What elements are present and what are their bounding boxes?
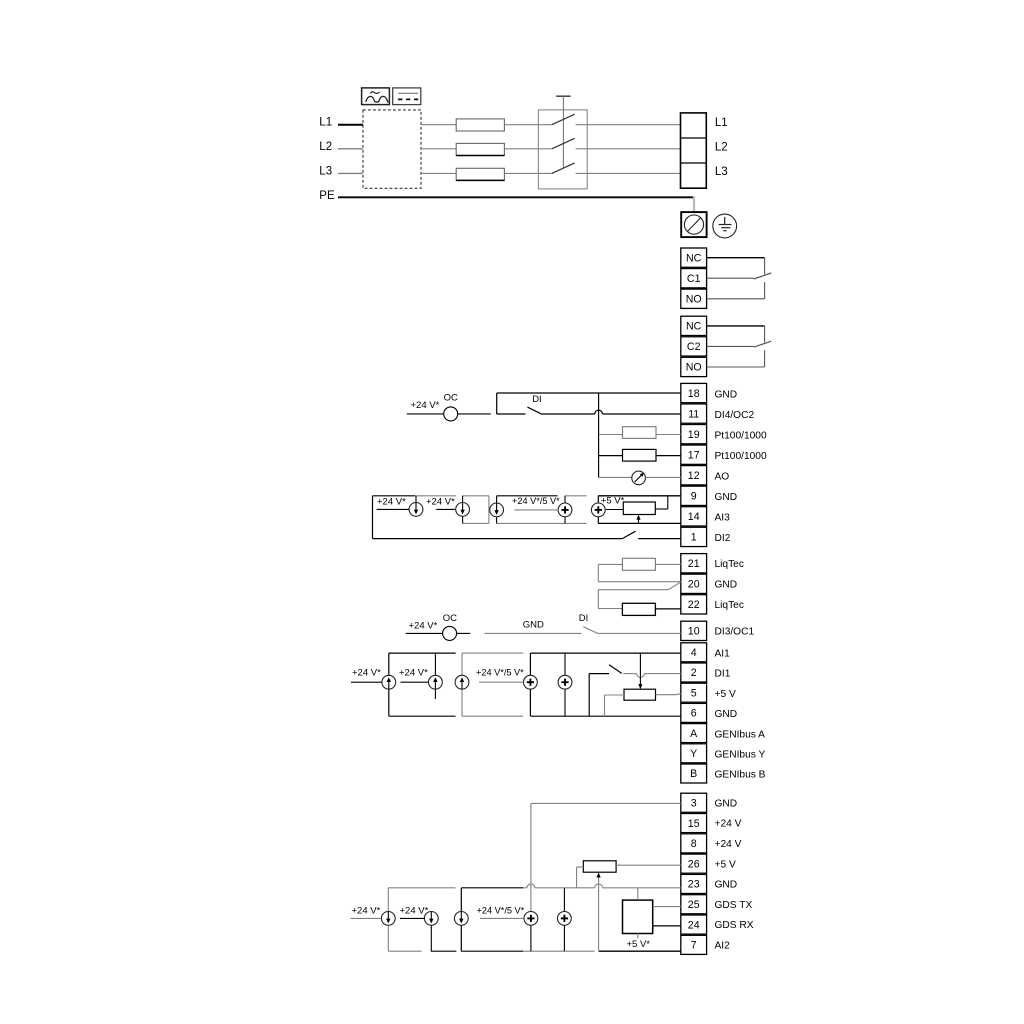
svg-text:B: B <box>690 768 697 780</box>
svg-text:1: 1 <box>691 532 697 544</box>
svg-text:DI2: DI2 <box>715 533 731 544</box>
svg-text:23: 23 <box>688 879 700 891</box>
svg-text:14: 14 <box>688 511 700 523</box>
svg-text:+24 V*: +24 V* <box>352 668 381 679</box>
svg-text:GND: GND <box>715 579 738 590</box>
svg-text:NO: NO <box>686 362 702 374</box>
svg-text:+24 V*: +24 V* <box>377 497 406 508</box>
svg-text:21: 21 <box>688 558 700 570</box>
svg-text:+24 V*: +24 V* <box>426 497 455 508</box>
svg-text:AI2: AI2 <box>715 941 731 952</box>
svg-text:+24 V*: +24 V* <box>411 400 440 411</box>
svg-text:+5 V: +5 V <box>715 859 736 870</box>
svg-text:OC: OC <box>444 393 458 404</box>
svg-text:A: A <box>690 728 698 740</box>
svg-text:22: 22 <box>688 599 700 611</box>
svg-text:C1: C1 <box>687 273 701 285</box>
svg-text:15: 15 <box>688 818 700 830</box>
svg-text:NC: NC <box>686 252 702 264</box>
svg-text:10: 10 <box>688 626 700 638</box>
svg-text:C2: C2 <box>687 341 701 353</box>
svg-text:25: 25 <box>688 899 700 911</box>
svg-text:4: 4 <box>691 647 697 659</box>
svg-text:+24 V*: +24 V* <box>400 906 429 917</box>
svg-text:GENIbus B: GENIbus B <box>715 770 766 781</box>
svg-text:GND: GND <box>715 709 738 720</box>
svg-text:Y: Y <box>690 748 697 760</box>
svg-text:DI: DI <box>532 394 542 405</box>
svg-text:NO: NO <box>686 293 702 305</box>
svg-text:11: 11 <box>688 408 699 420</box>
svg-text:L1: L1 <box>715 117 728 129</box>
svg-text:2: 2 <box>691 667 697 679</box>
svg-text:Pt100/1000: Pt100/1000 <box>715 430 767 441</box>
svg-text:L3: L3 <box>319 166 332 178</box>
svg-text:12: 12 <box>688 470 700 482</box>
svg-text:+24 V*/5 V*: +24 V*/5 V* <box>512 496 560 506</box>
svg-text:26: 26 <box>688 858 700 870</box>
svg-text:LiqTec: LiqTec <box>715 600 744 611</box>
svg-text:9: 9 <box>691 491 697 503</box>
svg-text:GDS TX: GDS TX <box>715 900 753 911</box>
svg-text:GND: GND <box>715 798 738 809</box>
svg-text:17: 17 <box>688 449 700 461</box>
svg-text:+5 V*: +5 V* <box>627 939 651 950</box>
svg-text:+24 V: +24 V <box>715 839 742 850</box>
svg-text:8: 8 <box>691 838 697 850</box>
svg-text:+24 V*/5 V*: +24 V*/5 V* <box>477 906 525 916</box>
svg-text:GENIbus Y: GENIbus Y <box>715 750 766 761</box>
svg-text:+24 V*/5 V*: +24 V*/5 V* <box>476 668 524 678</box>
svg-text:19: 19 <box>688 429 700 441</box>
svg-text:L1: L1 <box>319 116 332 128</box>
svg-text:+24 V*: +24 V* <box>399 668 428 679</box>
svg-text:GND: GND <box>715 389 738 400</box>
svg-text:DI3/OC1: DI3/OC1 <box>715 627 755 638</box>
svg-text:18: 18 <box>688 388 700 400</box>
svg-text:Pt100/1000: Pt100/1000 <box>715 451 767 462</box>
svg-text:LiqTec: LiqTec <box>715 559 744 570</box>
svg-text:PE: PE <box>319 190 335 202</box>
svg-text:NC: NC <box>686 321 702 333</box>
svg-text:+24 V*: +24 V* <box>409 620 438 631</box>
svg-text:+5 V: +5 V <box>715 689 736 700</box>
svg-text:L2: L2 <box>715 142 728 154</box>
svg-text:+24 V*: +24 V* <box>352 906 381 917</box>
svg-text:24: 24 <box>688 919 700 931</box>
svg-text:6: 6 <box>691 708 697 720</box>
svg-text:L2: L2 <box>319 141 332 153</box>
svg-text:5: 5 <box>691 687 697 699</box>
svg-text:GDS RX: GDS RX <box>715 920 754 931</box>
svg-text:AI3: AI3 <box>715 513 731 524</box>
svg-text:+5 V*: +5 V* <box>601 495 625 506</box>
svg-text:GND: GND <box>715 880 738 891</box>
svg-text:L3: L3 <box>715 166 728 178</box>
svg-text:DI: DI <box>579 613 589 624</box>
svg-text:GENIbus A: GENIbus A <box>715 729 766 740</box>
svg-text:AO: AO <box>715 472 730 483</box>
svg-text:DI4/OC2: DI4/OC2 <box>715 410 755 421</box>
svg-text:OC: OC <box>443 613 457 624</box>
svg-text:3: 3 <box>691 797 697 809</box>
svg-text:20: 20 <box>688 579 700 591</box>
svg-text:GND: GND <box>715 492 738 503</box>
svg-text:DI1: DI1 <box>715 669 731 680</box>
svg-text:7: 7 <box>691 940 697 952</box>
svg-text:AI1: AI1 <box>715 649 731 660</box>
svg-text:+24 V: +24 V <box>715 819 742 830</box>
svg-text:GND: GND <box>523 620 544 631</box>
